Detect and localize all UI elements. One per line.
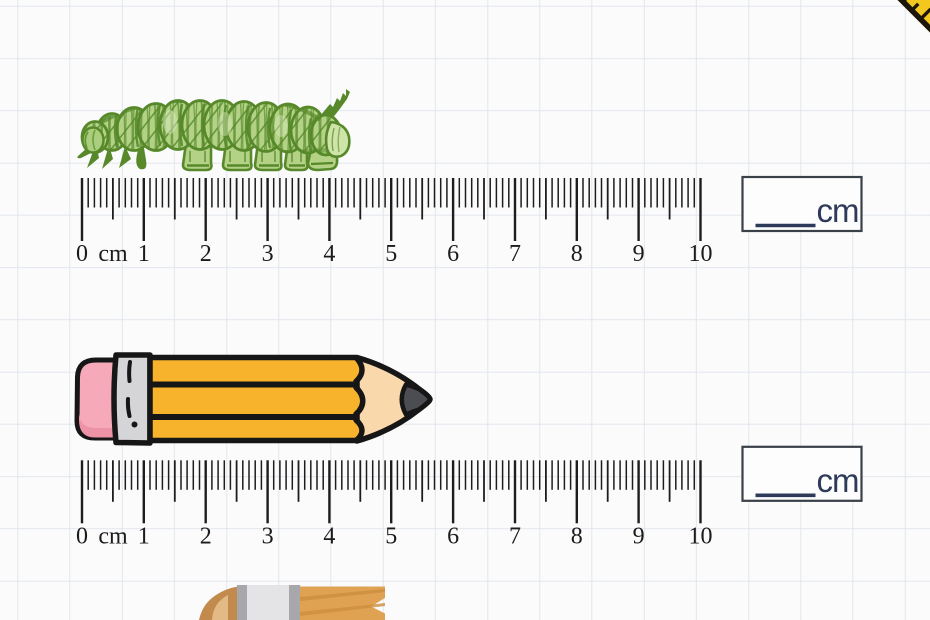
svg-text:9: 9 <box>633 241 645 267</box>
svg-text:4: 4 <box>323 241 335 267</box>
svg-text:cm: cm <box>817 192 859 229</box>
svg-text:6: 6 <box>447 241 459 267</box>
svg-text:8: 8 <box>571 523 583 549</box>
svg-text:4: 4 <box>323 523 335 549</box>
svg-text:2: 2 <box>200 523 212 549</box>
svg-text:3: 3 <box>262 241 274 267</box>
svg-text:cm: cm <box>817 462 859 499</box>
svg-text:cm: cm <box>98 241 128 267</box>
svg-text:2: 2 <box>200 241 212 267</box>
svg-text:7: 7 <box>509 241 521 267</box>
svg-text:10: 10 <box>689 523 713 549</box>
svg-text:cm: cm <box>98 523 128 549</box>
svg-text:0: 0 <box>76 241 88 267</box>
svg-text:6: 6 <box>447 523 459 549</box>
svg-text:8: 8 <box>571 241 583 267</box>
svg-text:9: 9 <box>633 523 645 549</box>
svg-text:10: 10 <box>689 241 713 267</box>
svg-text:1: 1 <box>138 241 150 267</box>
svg-text:7: 7 <box>509 523 521 549</box>
svg-text:0: 0 <box>76 523 88 549</box>
svg-text:5: 5 <box>385 241 397 267</box>
svg-text:1: 1 <box>138 523 150 549</box>
svg-text:3: 3 <box>262 523 274 549</box>
svg-text:5: 5 <box>385 523 397 549</box>
